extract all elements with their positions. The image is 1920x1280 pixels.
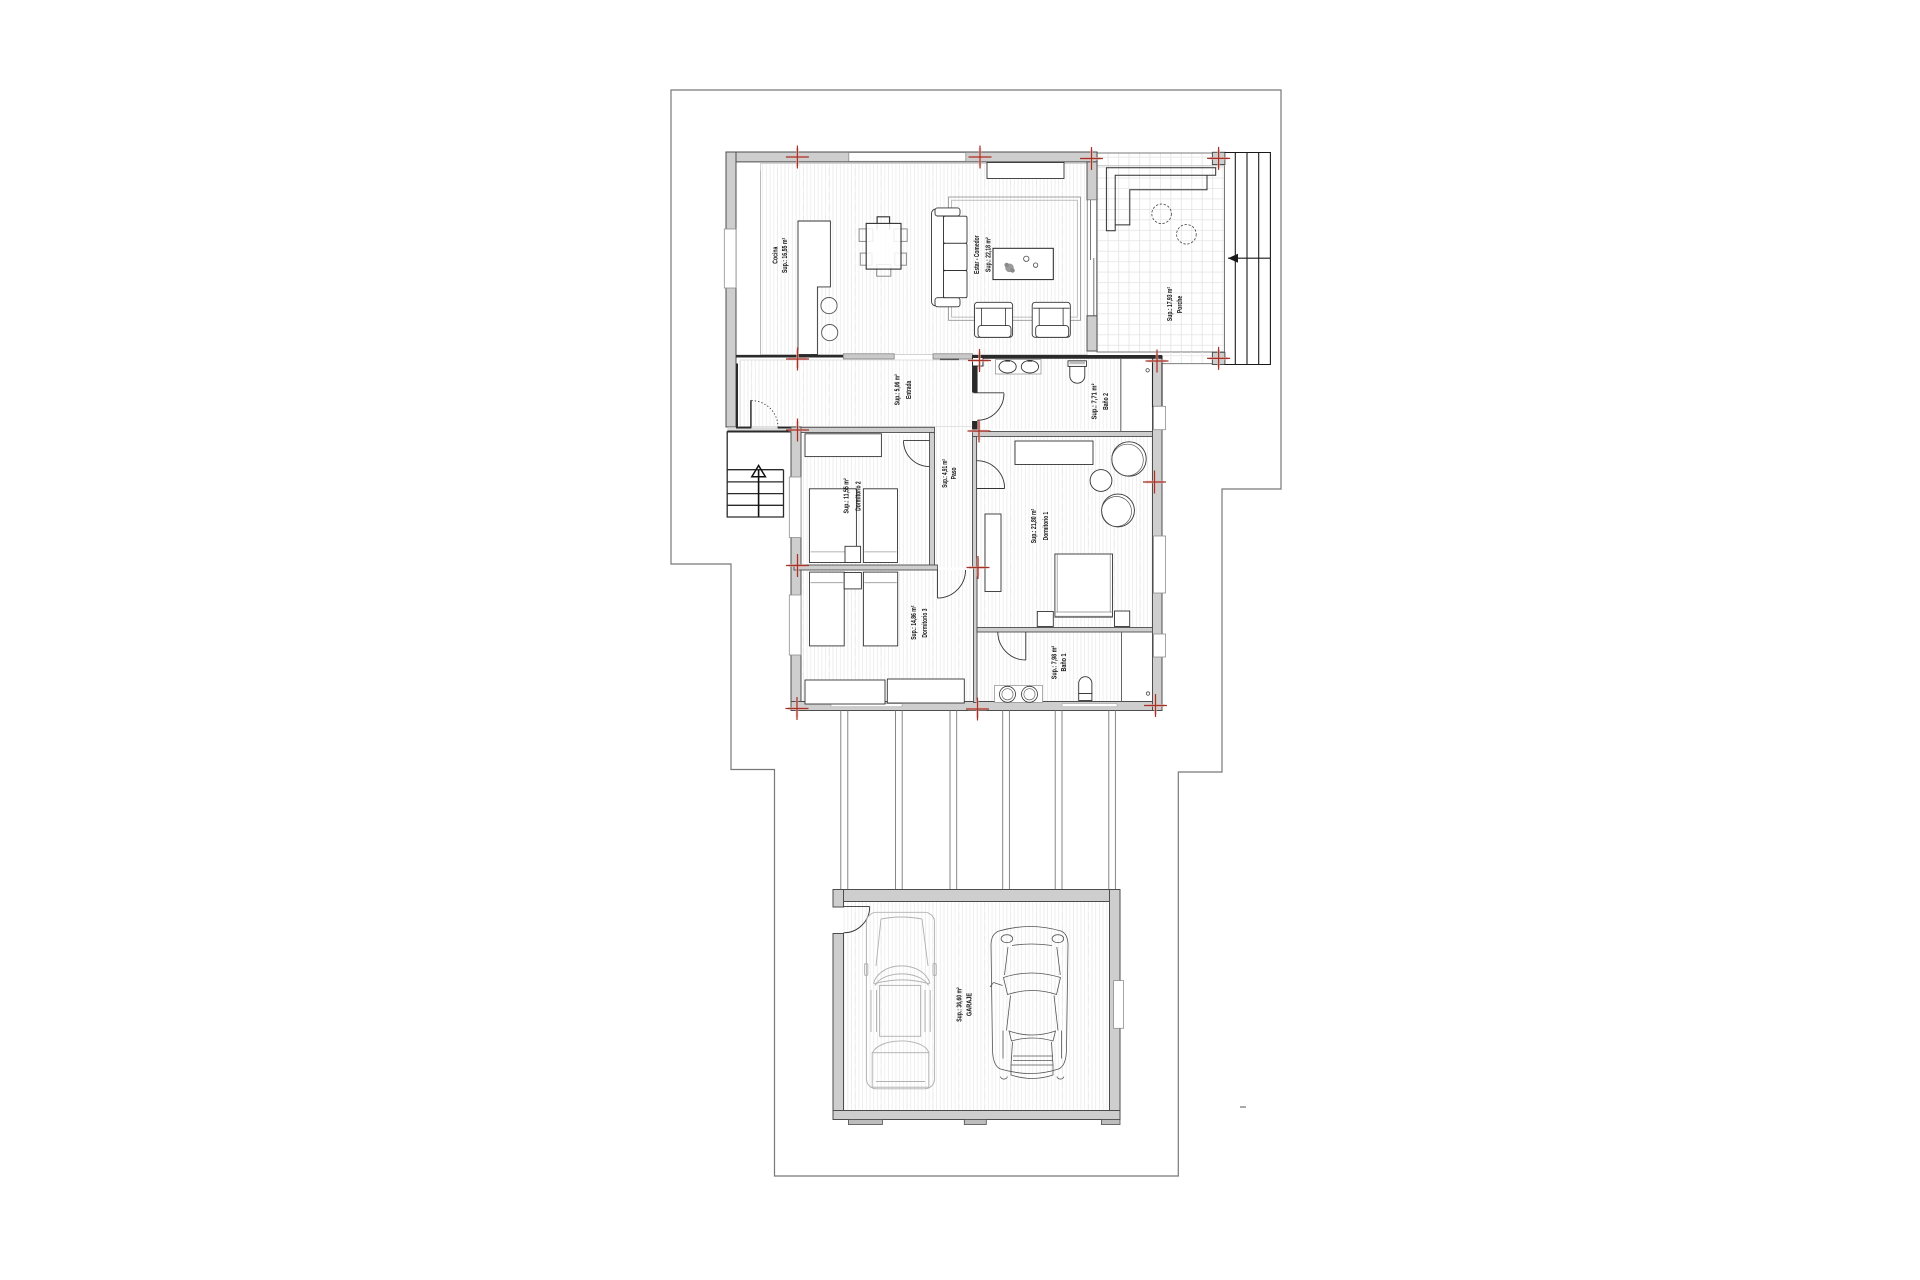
- svg-text:Baño 2: Baño 2: [1103, 393, 1110, 410]
- svg-text:Sup.: 14,86 m²: Sup.: 14,86 m²: [911, 605, 918, 640]
- svg-text:Sup.: 4,91 m²: Sup.: 4,91 m²: [942, 459, 949, 488]
- svg-text:Cocina: Cocina: [773, 247, 780, 264]
- svg-text:Sup.: 11,55 m²: Sup.: 11,55 m²: [844, 478, 851, 514]
- svg-text:GARAJE: GARAJE: [967, 993, 974, 1017]
- svg-text:Entrada: Entrada: [906, 381, 913, 399]
- svg-text:Sup.: 7,98 m²: Sup.: 7,98 m²: [1052, 645, 1059, 679]
- svg-text:Dormitorio 3: Dormitorio 3: [922, 608, 929, 637]
- svg-text:Sup.: 17,93 m²: Sup.: 17,93 m²: [1167, 286, 1174, 321]
- svg-text:Dormitorio 1: Dormitorio 1: [1043, 512, 1050, 541]
- svg-text:Dormitorio 2: Dormitorio 2: [856, 481, 863, 511]
- svg-text:Estar - Comedor: Estar - Comedor: [974, 235, 981, 274]
- svg-text:Sup.: 22,18 m²: Sup.: 22,18 m²: [986, 237, 993, 272]
- svg-text:Sup.: 5,06 m²: Sup.: 5,06 m²: [894, 374, 901, 406]
- svg-text:Sup.: 36,60 m²: Sup.: 36,60 m²: [957, 987, 964, 1022]
- svg-text:Sup.: 21,80 m²: Sup.: 21,80 m²: [1031, 508, 1038, 543]
- svg-text:Baño 1: Baño 1: [1061, 653, 1068, 671]
- svg-text:Paso: Paso: [951, 467, 958, 479]
- svg-text:Porche: Porche: [1177, 296, 1184, 314]
- svg-text:Sup.: 7,71 m²: Sup.: 7,71 m²: [1092, 383, 1099, 420]
- svg-text:Sup.: 16,55 m²: Sup.: 16,55 m²: [782, 237, 789, 273]
